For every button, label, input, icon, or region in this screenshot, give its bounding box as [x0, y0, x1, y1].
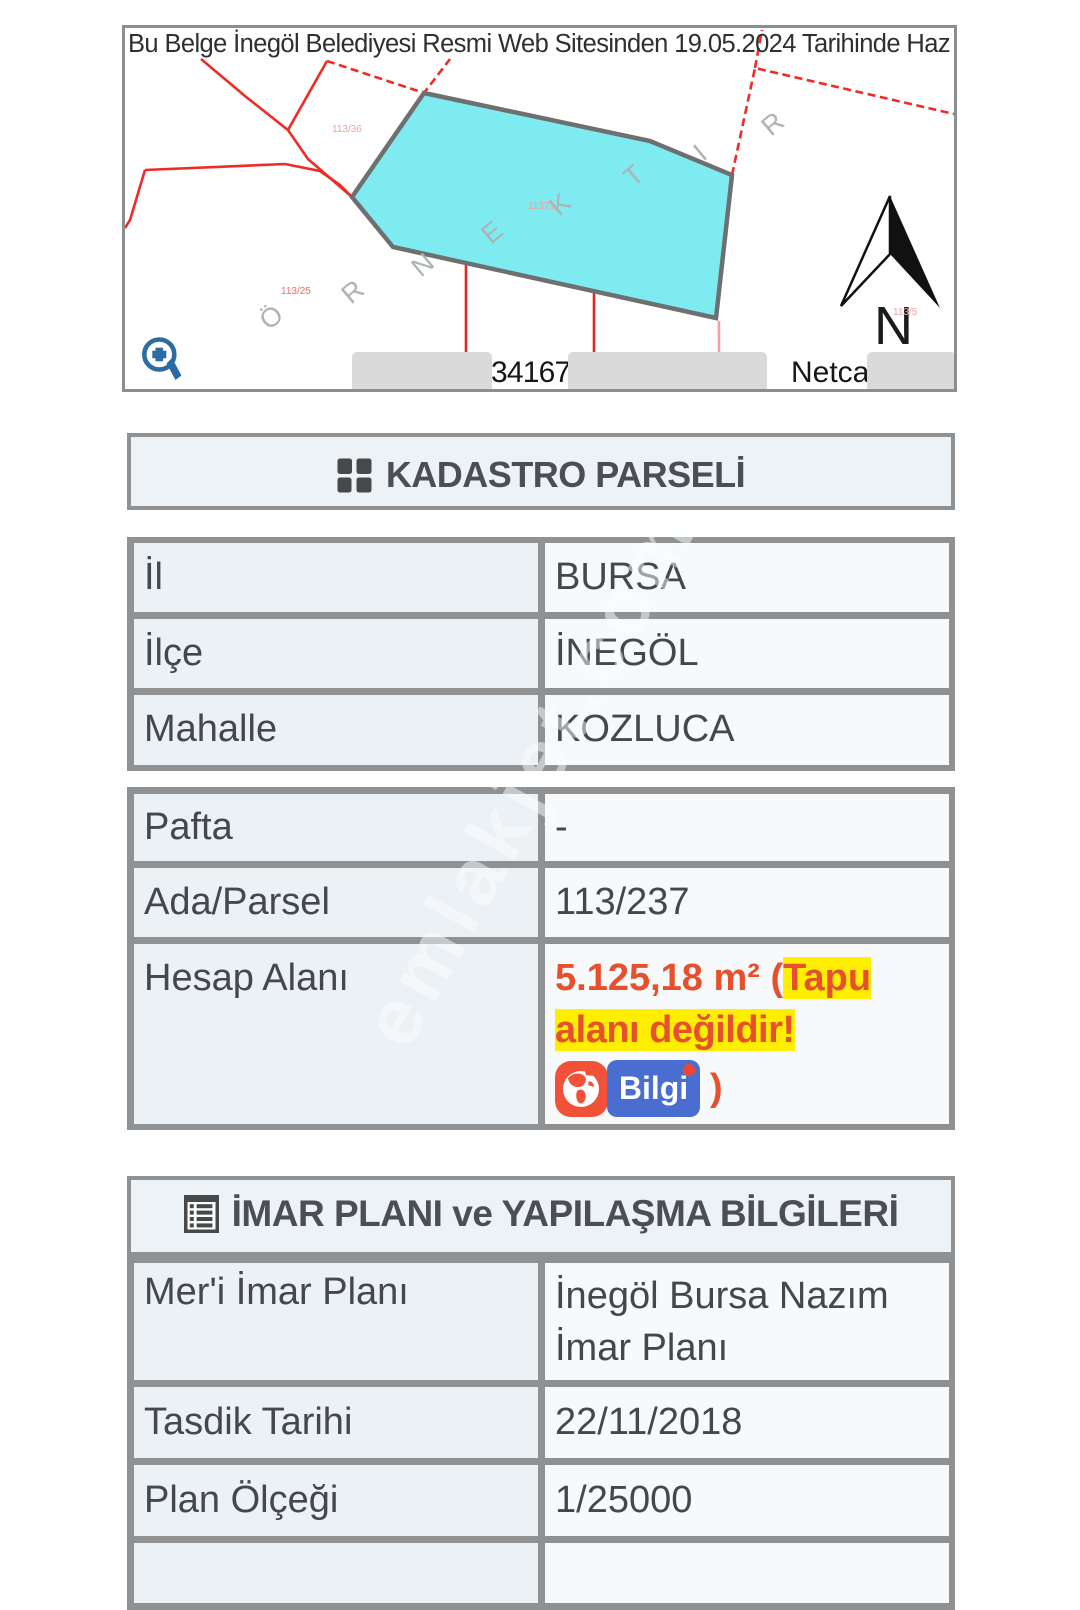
svg-text:34167: 34167	[491, 356, 571, 389]
svg-text:Ö: Ö	[254, 299, 289, 335]
svg-text:R: R	[336, 274, 370, 310]
svg-text:N: N	[874, 296, 913, 356]
svg-text:113/5: 113/5	[893, 307, 918, 318]
svg-text:R: R	[756, 106, 790, 142]
svg-text:113/25: 113/25	[281, 286, 311, 297]
svg-text:113/36: 113/36	[332, 124, 362, 135]
svg-text:Bu Belge İnegöl Belediyesi Res: Bu Belge İnegöl Belediyesi Resmi Web Sit…	[128, 29, 950, 58]
